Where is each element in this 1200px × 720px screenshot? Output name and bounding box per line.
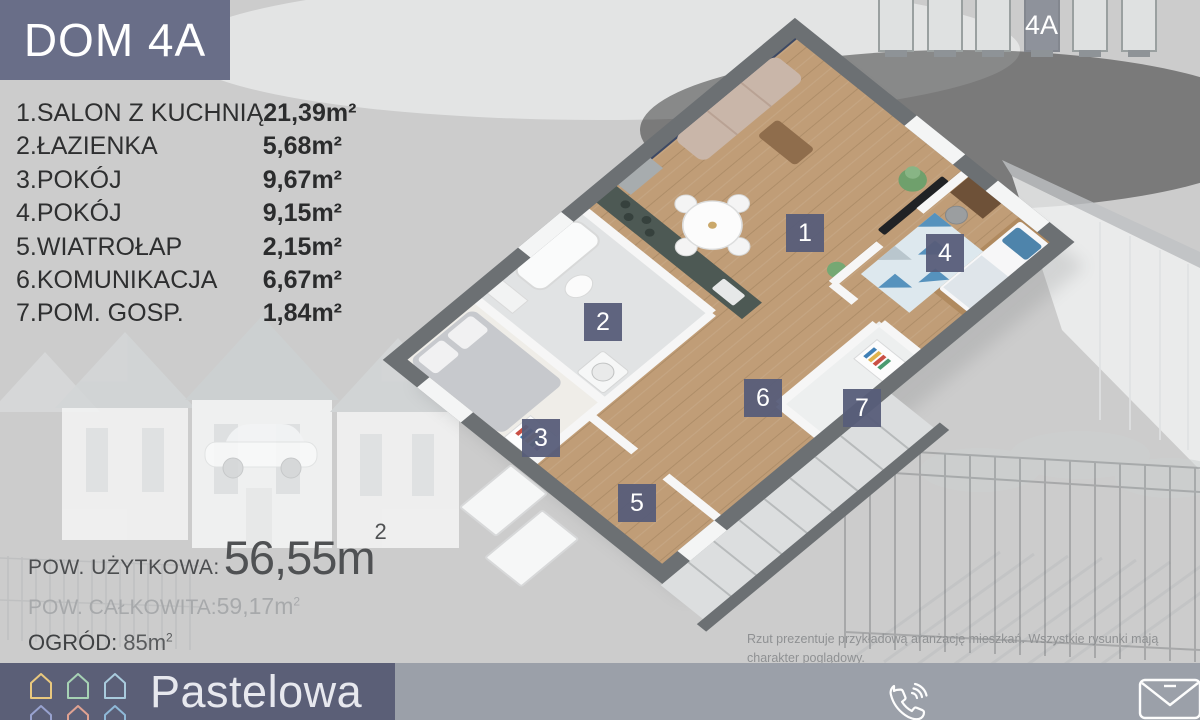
room-area: 2,15m²: [263, 233, 342, 262]
room-number-badge-2: 2: [584, 303, 622, 341]
room-row: 4.POKÓJ9,15m²: [16, 199, 342, 232]
room-number-badge-5: 5: [618, 484, 656, 522]
garden-area: OGRÓD:85m2: [28, 630, 386, 656]
entry-door: [460, 465, 547, 536]
tv: [878, 176, 950, 235]
accent-wall: [612, 28, 803, 186]
usable-area-value: 56,55m2: [224, 530, 386, 585]
brand-name: Pastelowa: [150, 666, 362, 718]
room-area: 9,67m²: [263, 166, 342, 195]
page-title: DOM 4A: [24, 13, 206, 67]
mail-button[interactable]: [1138, 678, 1200, 720]
brand-logo: [28, 673, 138, 720]
room-row: 1.SALON Z KUCHNIĄ21,39m²: [16, 99, 342, 132]
footer: Pastelowa: [0, 663, 1200, 720]
desk: [950, 176, 1003, 219]
coffee-table: [757, 119, 814, 166]
plant: [823, 258, 851, 281]
kitchen-counter: [592, 182, 762, 319]
footer-brand-block: Pastelowa: [0, 663, 395, 720]
unit-tile[interactable]: [927, 0, 963, 52]
room-row: 7.POM. GOSP.1,84m²: [16, 299, 342, 332]
header-title-box: DOM 4A: [0, 0, 230, 80]
bathroom-sink: [486, 279, 528, 313]
stairs: [655, 389, 945, 628]
background-back-roofs: [0, 352, 570, 420]
washing-machine: [577, 351, 630, 394]
background-neighbor-house: [1002, 160, 1200, 470]
room-label: 1.SALON Z KUCHNIĄ: [16, 99, 263, 128]
room-row: 3.POKÓJ9,67m²: [16, 166, 342, 199]
unit-tile[interactable]: [878, 0, 914, 52]
garden-area-value: 85m2: [123, 630, 172, 655]
room-label: 5.WIATROŁAP: [16, 233, 182, 262]
building-shadow: [413, 50, 1085, 600]
kitchen-sink: [711, 278, 745, 306]
usable-area-label: POW. UŻYTKOWA:: [28, 556, 220, 580]
total-area: POW. CAŁKOWITA:59,17m2: [28, 593, 386, 620]
bed-double: [409, 309, 564, 435]
unit-tile[interactable]: [975, 0, 1011, 52]
room-label: 3.POKÓJ: [16, 166, 122, 195]
room-row: 6.KOMUNIKACJA6,67m²: [16, 266, 342, 299]
unit-selector: 4A: [878, 0, 1157, 52]
background-car: [205, 424, 317, 478]
unit-tile[interactable]: [1121, 0, 1157, 52]
phone-icon: [882, 678, 928, 720]
unit-tile-selected[interactable]: 4A: [1024, 0, 1060, 52]
room-number-badge-6: 6: [744, 379, 782, 417]
room-area: 9,15m²: [263, 199, 342, 228]
room-number-badge-4: 4: [926, 234, 964, 272]
room-label: 4.POKÓJ: [16, 199, 122, 228]
dining-table: [671, 191, 755, 259]
room-number-badge-7: 7: [843, 389, 881, 427]
room-row: 2.ŁAZIENKA5,68m²: [16, 132, 342, 165]
desk-chair: [941, 202, 972, 227]
room-list: 1.SALON Z KUCHNIĄ21,39m² 2.ŁAZIENKA5,68m…: [16, 99, 342, 333]
total-area-label: POW. CAŁKOWITA:: [28, 596, 217, 619]
kitchen-cabinet: [612, 153, 663, 195]
room-label: 2.ŁAZIENKA: [16, 132, 158, 161]
room-number-badge-1: 1: [786, 214, 824, 252]
logo-house-icon: [68, 706, 88, 720]
bookshelf: [854, 340, 907, 383]
interior-walls: [398, 31, 1059, 572]
floorplan-flyer: DOM 4A 4A 1.SALON Z KUCHNIĄ21,39m² 2.ŁAZ…: [0, 0, 1200, 720]
room-label: 7.POM. GOSP.: [16, 299, 184, 328]
logo-house-icon: [105, 674, 125, 698]
room-area: 21,39m²: [263, 99, 356, 128]
garden-area-label: OGRÓD:: [28, 630, 117, 655]
unit-tile[interactable]: [1072, 0, 1108, 52]
exterior-walls: [395, 28, 1062, 574]
disclaimer-line-1: Rzut prezentuje przykładową aranżację mi…: [747, 630, 1167, 668]
room-number-badge-3: 3: [522, 419, 560, 457]
room-label: 6.KOMUNIKACJA: [16, 266, 217, 295]
sofa: [674, 55, 805, 163]
area-stats: POW. UŻYTKOWA: 56,55m2 POW. CAŁKOWITA:59…: [28, 530, 386, 656]
room-area: 1,84m²: [263, 299, 342, 328]
room-area: 5,68m²: [263, 132, 342, 161]
logo-house-icon: [31, 706, 51, 720]
bathtub: [512, 218, 603, 293]
total-area-value: 59,17m2: [217, 593, 300, 619]
windows: [395, 28, 1062, 574]
mail-icon: [1138, 678, 1200, 720]
bedroom-floor: [395, 296, 605, 466]
unit-tile-label: 4A: [1025, 10, 1058, 41]
wood-floor: [395, 28, 1062, 574]
room-row: 5.WIATROŁAP2,15m²: [16, 233, 342, 266]
usable-area: POW. UŻYTKOWA: 56,55m2: [28, 530, 386, 585]
logo-house-icon: [105, 706, 125, 720]
footer-contact-strip: [395, 663, 1200, 720]
toilet: [560, 270, 599, 302]
room-area: 6,67m²: [263, 266, 342, 295]
plant: [893, 164, 933, 197]
rug: [861, 213, 983, 313]
logo-house-icon: [31, 674, 51, 698]
logo-house-icon: [68, 674, 88, 698]
entry-door: [485, 510, 578, 586]
phone-button[interactable]: [882, 678, 928, 720]
background-houses: [55, 316, 466, 548]
background-hedge: [920, 431, 1200, 498]
